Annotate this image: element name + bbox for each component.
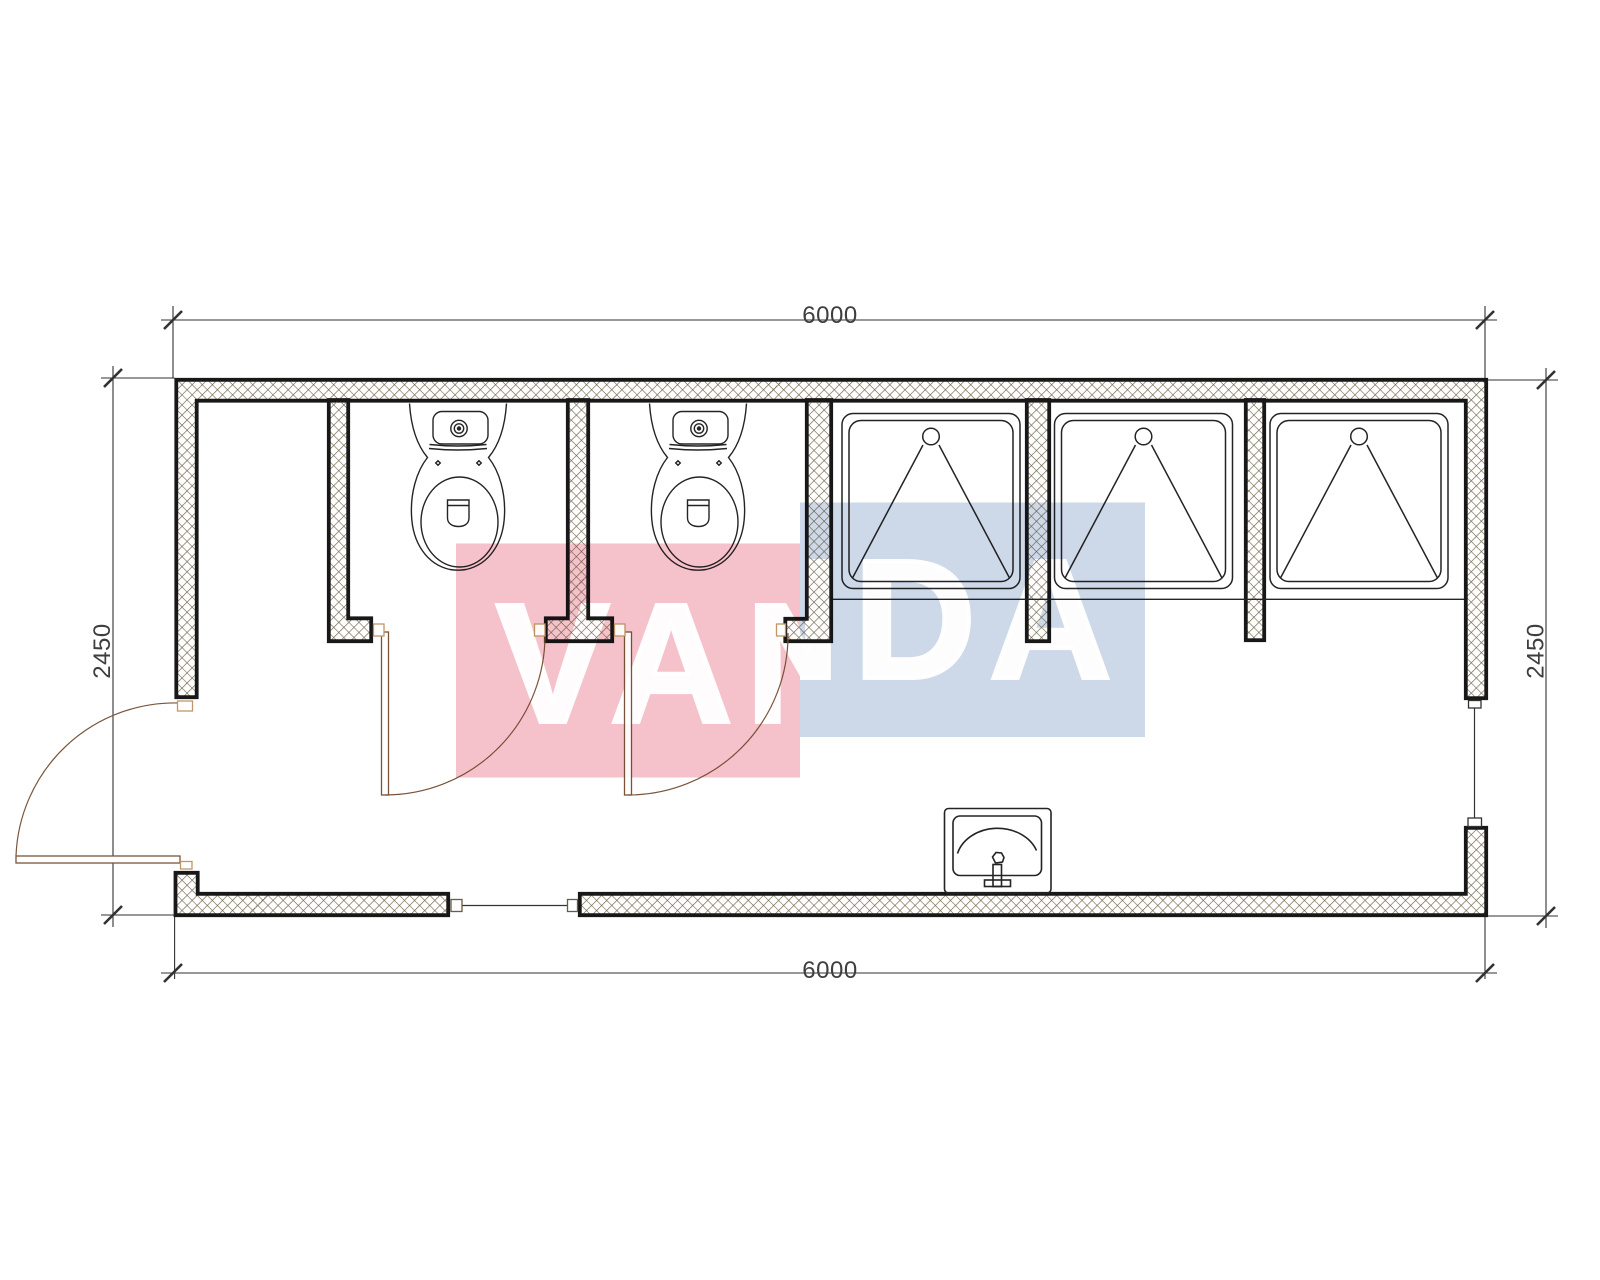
svg-text:6000: 6000 — [802, 302, 857, 329]
svg-text:6000: 6000 — [802, 957, 857, 984]
svg-text:2450: 2450 — [89, 623, 116, 678]
svg-text:2450: 2450 — [1523, 623, 1550, 678]
